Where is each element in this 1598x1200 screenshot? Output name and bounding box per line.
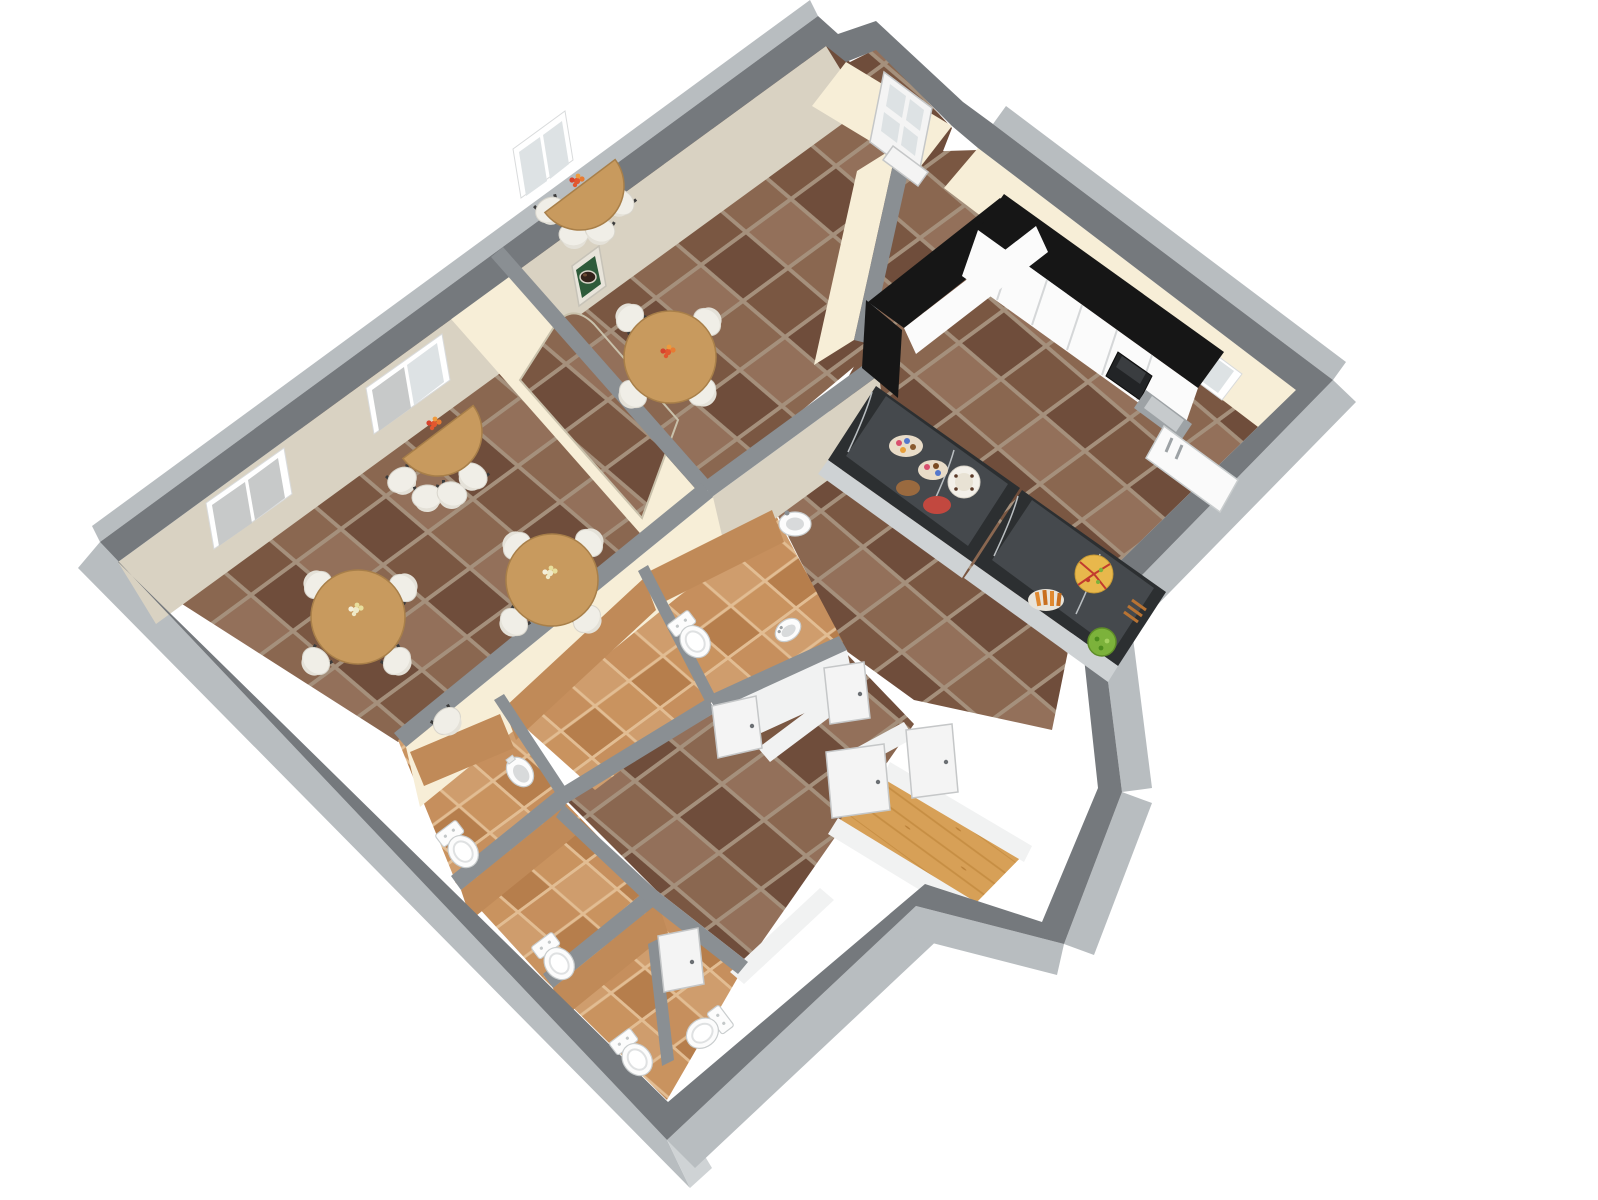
door-bathroom-center bbox=[712, 696, 762, 758]
croissant-tray bbox=[1028, 589, 1064, 611]
floorplan-rendering bbox=[0, 0, 1598, 1200]
berry-tart-tray bbox=[923, 496, 951, 514]
floorplan-stage: 3D axonometric floor plan of a small caf… bbox=[0, 0, 1598, 1200]
pastry-tray bbox=[896, 480, 920, 496]
door-corridor-2 bbox=[826, 744, 890, 818]
round-table-dining1-right bbox=[493, 522, 610, 643]
door-stall bbox=[658, 928, 704, 992]
door-vestibule bbox=[906, 724, 958, 798]
round-table-dining1-left bbox=[295, 564, 424, 682]
round-table-dining2 bbox=[609, 297, 728, 415]
door-corridor-1 bbox=[824, 662, 870, 724]
salad-bowl bbox=[1088, 628, 1116, 656]
donut-tray-1 bbox=[889, 435, 923, 457]
pizza-platter bbox=[1075, 555, 1113, 593]
layer-cake bbox=[948, 466, 980, 498]
donut-tray-2 bbox=[918, 460, 948, 480]
